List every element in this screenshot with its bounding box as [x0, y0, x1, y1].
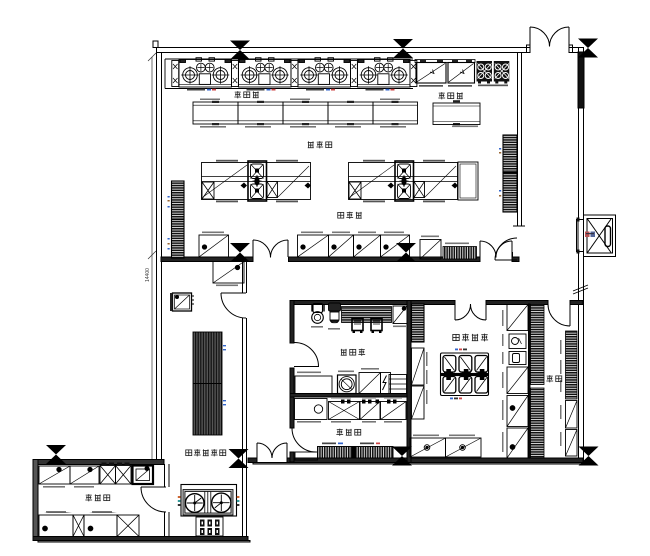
svg-text:14400: 14400: [145, 268, 151, 282]
